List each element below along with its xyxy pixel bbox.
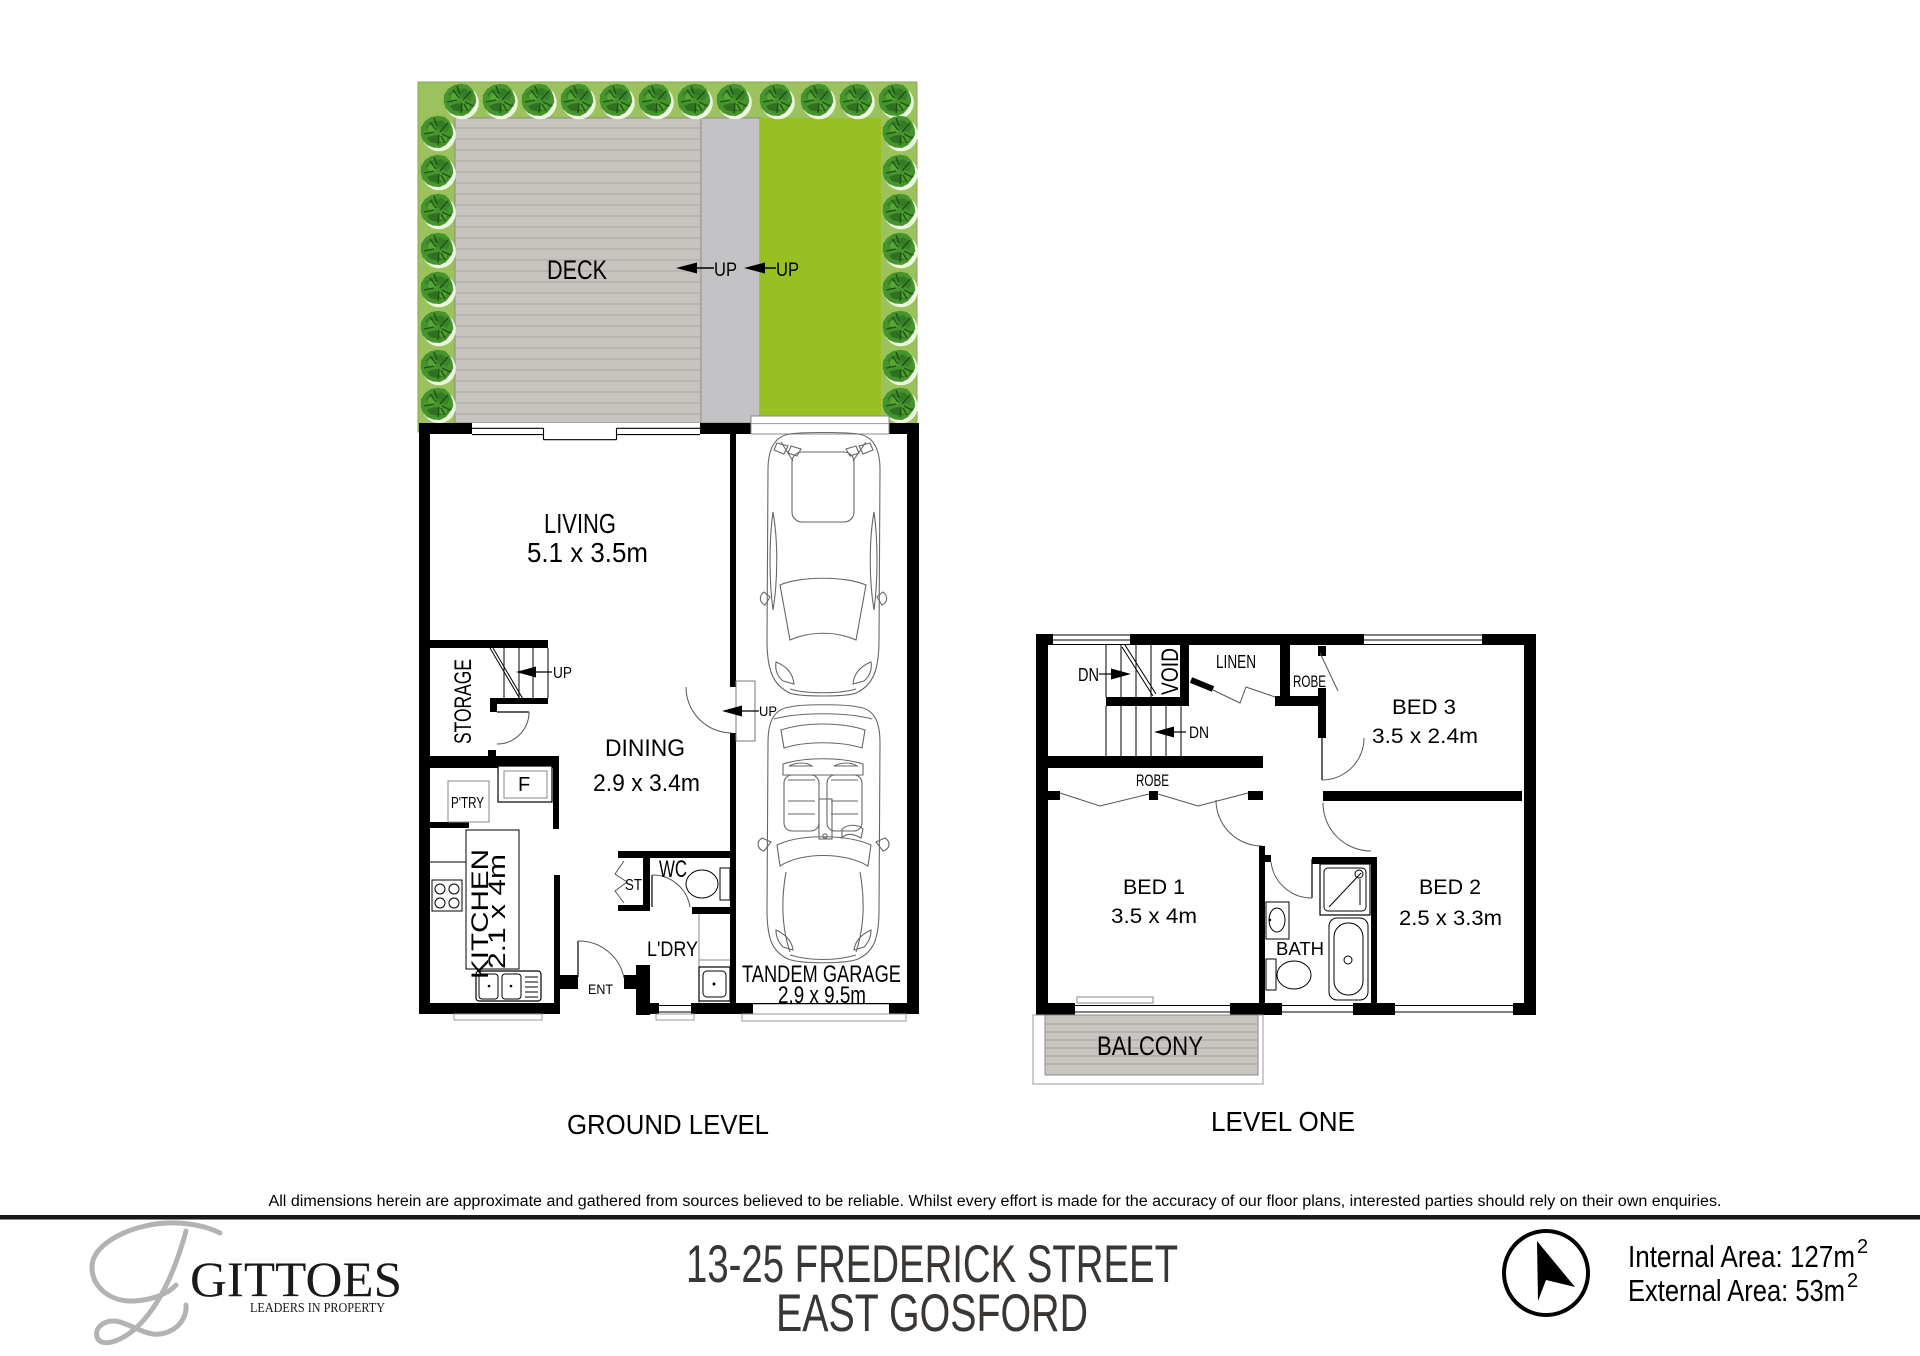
svg-text:LINEN: LINEN bbox=[1216, 652, 1256, 672]
svg-text:BED 1: BED 1 bbox=[1123, 875, 1185, 899]
svg-text:2.9 x 3.4m: 2.9 x 3.4m bbox=[593, 770, 700, 797]
svg-text:L'DRY: L'DRY bbox=[647, 938, 698, 961]
svg-text:EAST GOSFORD: EAST GOSFORD bbox=[776, 1284, 1088, 1343]
svg-text:LEVEL ONE: LEVEL ONE bbox=[1211, 1106, 1355, 1137]
svg-text:External Area: 53m: External Area: 53m bbox=[1628, 1273, 1845, 1308]
svg-text:UP: UP bbox=[759, 703, 777, 719]
svg-text:3.5 x 4m: 3.5 x 4m bbox=[1111, 904, 1197, 928]
svg-text:LEADERS IN PROPERTY: LEADERS IN PROPERTY bbox=[250, 1300, 385, 1315]
svg-text:LIVING: LIVING bbox=[544, 508, 616, 539]
svg-text:ROBE: ROBE bbox=[1136, 771, 1169, 790]
svg-text:ENT: ENT bbox=[588, 981, 613, 997]
svg-text:BALCONY: BALCONY bbox=[1097, 1031, 1203, 1061]
svg-text:2.1 x 4m: 2.1 x 4m bbox=[484, 854, 511, 969]
svg-text:DINING: DINING bbox=[605, 735, 685, 762]
svg-text:BATH: BATH bbox=[1276, 938, 1324, 959]
svg-text:UP: UP bbox=[776, 260, 799, 281]
svg-text:5.1 x 3.5m: 5.1 x 3.5m bbox=[527, 537, 648, 568]
svg-text:All dimensions herein are appr: All dimensions herein are approximate an… bbox=[269, 1193, 1722, 1210]
svg-text:3.5 x 2.4m: 3.5 x 2.4m bbox=[1372, 724, 1478, 748]
svg-text:UP: UP bbox=[553, 665, 572, 682]
svg-text:ROBE: ROBE bbox=[1293, 672, 1326, 691]
svg-text:UP: UP bbox=[714, 260, 737, 281]
svg-text:DN: DN bbox=[1189, 723, 1209, 742]
svg-text:DECK: DECK bbox=[547, 255, 607, 285]
svg-text:2.5 x 3.3m: 2.5 x 3.3m bbox=[1399, 906, 1502, 930]
svg-text:F: F bbox=[518, 774, 530, 796]
svg-text:2: 2 bbox=[1857, 1236, 1868, 1258]
svg-text:Internal Area: 127m: Internal Area: 127m bbox=[1628, 1239, 1855, 1274]
svg-text:DN: DN bbox=[1078, 665, 1099, 685]
svg-text:STORAGE: STORAGE bbox=[450, 659, 477, 744]
svg-text:BED 2: BED 2 bbox=[1419, 875, 1481, 899]
svg-text:WC: WC bbox=[659, 856, 687, 883]
svg-text:2.9 x 9.5m: 2.9 x 9.5m bbox=[778, 982, 866, 1009]
svg-text:VOID: VOID bbox=[1157, 648, 1184, 695]
svg-text:2: 2 bbox=[1847, 1270, 1858, 1292]
svg-text:P'TRY: P'TRY bbox=[451, 795, 484, 812]
svg-text:GITTOES: GITTOES bbox=[190, 1251, 402, 1307]
svg-text:BED 3: BED 3 bbox=[1392, 695, 1456, 719]
svg-text:ST: ST bbox=[625, 877, 642, 894]
svg-text:GROUND LEVEL: GROUND LEVEL bbox=[567, 1109, 769, 1140]
